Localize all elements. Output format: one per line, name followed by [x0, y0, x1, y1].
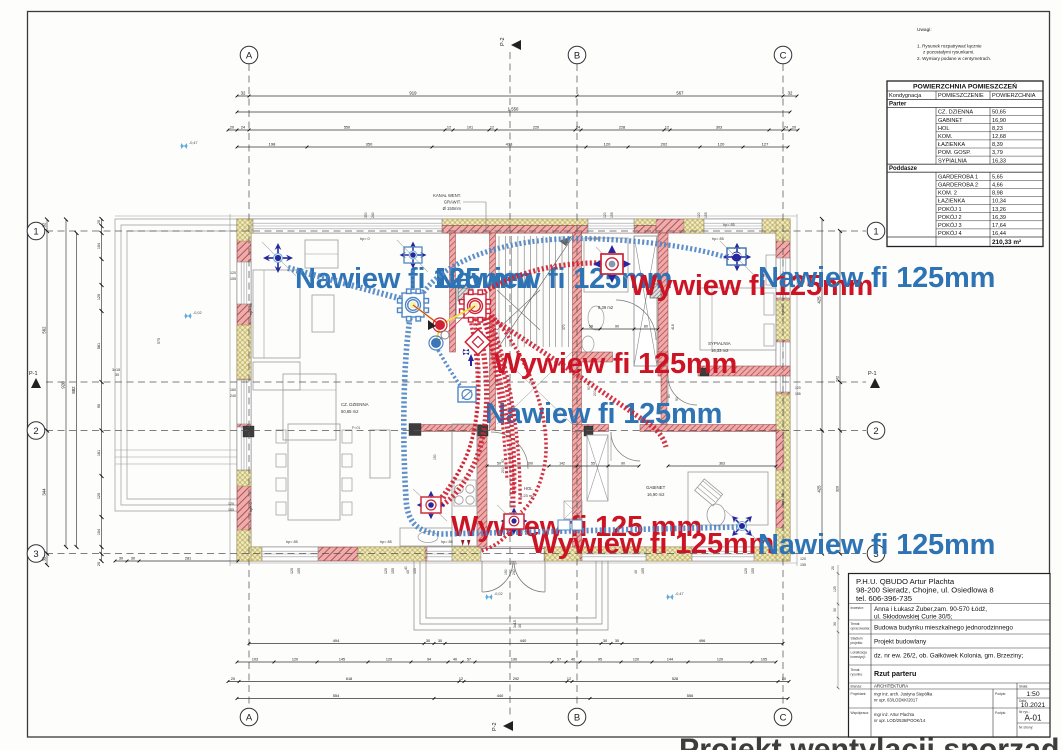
- svg-text:240: 240: [230, 394, 236, 398]
- svg-text:160: 160: [230, 388, 236, 392]
- svg-text:1. Rysunek rozpatrywać łącznie: 1. Rysunek rozpatrywać łącznie: [917, 44, 982, 49]
- svg-text:104: 104: [97, 243, 101, 249]
- svg-text:rysunku:: rysunku:: [851, 673, 864, 677]
- svg-text:nr upr. LOD/2536/POOK/14: nr upr. LOD/2536/POOK/14: [874, 718, 926, 723]
- svg-text:10,34: 10,34: [992, 199, 1006, 205]
- svg-text:projektu:: projektu:: [851, 641, 864, 645]
- svg-text:GRAWIT.: GRAWIT.: [444, 200, 461, 205]
- svg-text:190: 190: [511, 658, 517, 662]
- svg-text:opracowania:: opracowania:: [851, 627, 871, 631]
- svg-text:GABINET: GABINET: [938, 118, 963, 124]
- svg-text:242: 242: [836, 376, 840, 382]
- svg-text:1 550: 1 550: [508, 107, 519, 112]
- svg-text:Lokalizacja: Lokalizacja: [851, 651, 867, 655]
- svg-text:120: 120: [97, 294, 101, 300]
- svg-text:363: 363: [719, 462, 725, 466]
- svg-text:ŁAZIENKA: ŁAZIENKA: [938, 199, 965, 205]
- svg-text:KOM. 2: KOM. 2: [938, 191, 957, 197]
- svg-text:8,23 m2: 8,23 m2: [520, 493, 535, 498]
- svg-text:30: 30: [119, 557, 123, 561]
- svg-text:Nawiew fi 125mm: Nawiew fi 125mm: [485, 398, 722, 430]
- svg-text:120: 120: [795, 386, 801, 390]
- svg-text:120: 120: [717, 658, 723, 662]
- svg-text:8,39: 8,39: [992, 142, 1003, 148]
- svg-text:350: 350: [364, 212, 368, 218]
- svg-text:A-01: A-01: [1025, 714, 1042, 723]
- svg-text:202: 202: [661, 142, 668, 147]
- svg-text:30: 30: [518, 624, 522, 628]
- svg-text:HOL: HOL: [524, 486, 533, 491]
- svg-text:105: 105: [761, 658, 767, 662]
- svg-text:200: 200: [593, 390, 597, 396]
- svg-text:370: 370: [562, 324, 566, 330]
- svg-text:Rzut parteru: Rzut parteru: [874, 669, 916, 678]
- svg-text:104: 104: [97, 529, 101, 535]
- svg-text:155: 155: [610, 212, 614, 218]
- svg-text:155: 155: [230, 277, 236, 281]
- svg-text:3x15: 3x15: [513, 620, 517, 628]
- svg-text:CZ. DZIENNA: CZ. DZIENNA: [938, 110, 973, 116]
- svg-text:198: 198: [269, 142, 276, 147]
- svg-text:440: 440: [497, 693, 504, 698]
- svg-text:2: 2: [873, 426, 878, 437]
- svg-text:142: 142: [559, 462, 565, 466]
- svg-text:155: 155: [228, 508, 234, 512]
- svg-text:95: 95: [598, 658, 602, 662]
- svg-text:344: 344: [42, 488, 47, 496]
- svg-text:Uwagi:: Uwagi:: [917, 27, 932, 33]
- svg-text:919: 919: [409, 91, 417, 96]
- svg-text:P-1: P-1: [868, 371, 877, 377]
- svg-text:Nawiew fi 125mm: Nawiew fi 125mm: [758, 529, 995, 561]
- svg-text:A: A: [246, 712, 253, 723]
- svg-text:hp= 85: hp= 85: [712, 237, 724, 241]
- svg-text:120: 120: [97, 493, 101, 499]
- svg-text:120: 120: [290, 568, 294, 574]
- svg-text:P-1: P-1: [29, 371, 38, 377]
- svg-text:GARDEROBA 2: GARDEROBA 2: [938, 183, 978, 189]
- svg-text:30: 30: [115, 373, 119, 377]
- svg-text:16,90: 16,90: [992, 118, 1006, 124]
- svg-text:433: 433: [506, 142, 513, 147]
- svg-text:32: 32: [42, 556, 47, 561]
- svg-text:1: 1: [873, 226, 878, 237]
- svg-text:Podpis:: Podpis:: [995, 692, 1006, 696]
- svg-text:292: 292: [513, 677, 519, 681]
- svg-text:Temat: Temat: [851, 622, 860, 626]
- svg-text:Skala:: Skala:: [1019, 685, 1028, 689]
- svg-text:Projekt wentylacji sporządził:: Projekt wentylacji sporządził:: [679, 734, 1061, 750]
- svg-text:2. Wymiary podane w centymetra: 2. Wymiary podane w centymetrach.: [917, 56, 991, 61]
- svg-text:Poddasze: Poddasze: [889, 166, 918, 172]
- svg-text:4,66: 4,66: [992, 183, 1003, 189]
- svg-text:32: 32: [42, 222, 47, 227]
- svg-text:Projektant:: Projektant:: [851, 692, 867, 696]
- svg-text:100: 100: [527, 462, 533, 466]
- svg-text:120: 120: [292, 658, 298, 662]
- svg-text:12,68: 12,68: [992, 134, 1006, 140]
- svg-text:24: 24: [576, 126, 580, 130]
- svg-text:Inwestor:: Inwestor:: [851, 606, 864, 610]
- svg-text:C: C: [780, 712, 787, 723]
- svg-text:575: 575: [157, 338, 161, 344]
- svg-text:B: B: [574, 712, 580, 723]
- svg-text:3,79: 3,79: [992, 150, 1003, 156]
- svg-text:567: 567: [676, 91, 684, 96]
- svg-text:A: A: [246, 50, 253, 61]
- svg-text:hp= 85: hp= 85: [249, 303, 253, 315]
- svg-text:Budowa budynku mieszkalnego je: Budowa budynku mieszkalnego jednorodzinn…: [874, 625, 1013, 632]
- svg-text:POKÓJ 2: POKÓJ 2: [938, 214, 962, 221]
- svg-text:16,39: 16,39: [992, 215, 1006, 221]
- svg-text:350: 350: [366, 142, 373, 147]
- svg-text:16,90 m2: 16,90 m2: [647, 492, 665, 497]
- svg-text:144: 144: [667, 658, 673, 662]
- svg-text:228: 228: [619, 126, 625, 130]
- svg-text:Temat: Temat: [851, 668, 860, 672]
- svg-text:ul. Skłodowskiej Curie 30/5;: ul. Skłodowskiej Curie 30/5;: [874, 614, 953, 621]
- svg-text:155: 155: [391, 568, 395, 574]
- svg-text:20: 20: [782, 677, 786, 681]
- svg-text:155: 155: [704, 212, 708, 218]
- svg-text:55: 55: [591, 462, 595, 466]
- svg-text:281: 281: [185, 557, 191, 561]
- svg-text:POKÓJ 4: POKÓJ 4: [938, 230, 962, 237]
- svg-text:618: 618: [346, 677, 352, 681]
- svg-text:10.2021: 10.2021: [1021, 702, 1046, 709]
- svg-text:494: 494: [333, 638, 340, 643]
- svg-text:Nr strony:: Nr strony:: [1019, 726, 1033, 730]
- svg-text:Ø 150mm: Ø 150mm: [443, 206, 462, 211]
- svg-text:12: 12: [490, 126, 494, 130]
- svg-text:hp= 85: hp= 85: [723, 223, 735, 227]
- svg-text:120: 120: [604, 142, 611, 147]
- svg-text:120: 120: [744, 568, 748, 574]
- svg-text:CZ. DZIENNA: CZ. DZIENNA: [341, 402, 369, 407]
- svg-text:554: 554: [333, 693, 340, 698]
- svg-text:12: 12: [665, 126, 669, 130]
- svg-text:POWIERZCHNIA: POWIERZCHNIA: [992, 93, 1036, 99]
- svg-text:inwestycji:: inwestycji:: [851, 655, 866, 659]
- svg-text:hp= 0: hp= 0: [360, 237, 370, 241]
- svg-text:200: 200: [501, 467, 505, 473]
- svg-text:GARDEROBA 1: GARDEROBA 1: [938, 174, 978, 180]
- svg-text:155: 155: [751, 568, 755, 574]
- svg-text:20: 20: [97, 220, 101, 224]
- svg-text:5,65: 5,65: [992, 174, 1003, 180]
- svg-text:882: 882: [71, 386, 76, 394]
- svg-text:418: 418: [671, 324, 675, 330]
- svg-text:190: 190: [504, 569, 508, 575]
- svg-text:8,23: 8,23: [992, 126, 1003, 132]
- svg-text:16,33: 16,33: [992, 158, 1006, 164]
- svg-text:20: 20: [97, 562, 101, 566]
- svg-text:120: 120: [384, 568, 388, 574]
- svg-text:17,64: 17,64: [992, 223, 1006, 229]
- svg-text:240: 240: [371, 212, 375, 218]
- svg-text:103: 103: [252, 658, 258, 662]
- svg-text:120: 120: [386, 658, 392, 662]
- svg-text:320: 320: [836, 486, 840, 492]
- svg-text:40: 40: [453, 658, 457, 662]
- svg-text:920: 920: [61, 381, 66, 389]
- svg-text:ARCHITEKTURA: ARCHITEKTURA: [874, 684, 908, 689]
- svg-text:40: 40: [571, 658, 575, 662]
- svg-text:90: 90: [621, 462, 625, 466]
- svg-text:Kondygnacja: Kondygnacja: [889, 93, 922, 99]
- svg-text:POKÓJ 1: POKÓJ 1: [938, 206, 962, 213]
- svg-text:-0,47: -0,47: [189, 141, 198, 145]
- svg-text:155: 155: [413, 568, 417, 574]
- svg-text:57: 57: [557, 658, 561, 662]
- svg-text:90: 90: [615, 325, 619, 329]
- svg-text:50,65 m2: 50,65 m2: [341, 409, 359, 414]
- svg-text:496: 496: [699, 638, 706, 643]
- svg-text:30: 30: [131, 557, 135, 561]
- svg-text:POM. GOSP.: POM. GOSP.: [938, 150, 971, 156]
- svg-text:B: B: [574, 50, 580, 61]
- svg-text:Nawiew fi 125mm: Nawiew fi 125mm: [758, 262, 995, 294]
- svg-text:80: 80: [644, 325, 648, 329]
- svg-text:Podpis:: Podpis:: [995, 711, 1006, 715]
- svg-text:50,65: 50,65: [992, 110, 1006, 116]
- svg-text:C: C: [780, 50, 787, 61]
- svg-text:210,33 m²: 210,33 m²: [992, 239, 1021, 246]
- svg-text:Współpraca:: Współpraca:: [851, 711, 869, 715]
- svg-text:SYPIALNIA: SYPIALNIA: [938, 158, 967, 164]
- svg-text:SYPIALNIA: SYPIALNIA: [708, 341, 731, 346]
- svg-text:12: 12: [459, 677, 463, 681]
- svg-text:GABINET: GABINET: [646, 485, 666, 490]
- svg-text:20: 20: [792, 126, 796, 130]
- svg-text:425: 425: [817, 485, 822, 493]
- svg-text:20: 20: [230, 126, 234, 130]
- svg-text:32: 32: [241, 91, 246, 96]
- svg-text:P-2: P-2: [500, 37, 506, 46]
- svg-text:1:50: 1:50: [1026, 691, 1039, 698]
- svg-text:550: 550: [344, 126, 350, 130]
- svg-text:90: 90: [587, 386, 591, 390]
- svg-text:-0,47: -0,47: [675, 592, 684, 596]
- svg-text:101: 101: [467, 126, 473, 130]
- svg-text:20: 20: [831, 566, 835, 570]
- svg-text:30: 30: [833, 608, 837, 612]
- svg-text:127: 127: [762, 142, 769, 147]
- svg-text:12: 12: [567, 677, 571, 681]
- svg-text:2: 2: [33, 426, 38, 437]
- svg-text:30: 30: [833, 622, 837, 626]
- svg-text:HOL: HOL: [938, 126, 950, 132]
- svg-text:240: 240: [512, 569, 516, 575]
- svg-text:Stadium: Stadium: [851, 637, 863, 641]
- svg-text:24: 24: [784, 126, 788, 130]
- svg-text:KOM.: KOM.: [938, 134, 953, 140]
- svg-text:440: 440: [520, 638, 527, 643]
- svg-text:120: 120: [718, 142, 725, 147]
- svg-text:32: 32: [788, 91, 793, 96]
- svg-text:125: 125: [833, 586, 837, 592]
- svg-text:562: 562: [42, 326, 47, 334]
- svg-text:24: 24: [241, 126, 245, 130]
- svg-text:581: 581: [97, 343, 101, 349]
- svg-text:150: 150: [433, 454, 437, 460]
- svg-text:16,44: 16,44: [992, 231, 1006, 237]
- svg-text:120: 120: [230, 271, 236, 275]
- svg-text:nr upr. 03/LODKK/2017: nr upr. 03/LODKK/2017: [874, 698, 918, 703]
- svg-text:3x15: 3x15: [112, 368, 120, 372]
- svg-text:155: 155: [795, 392, 801, 396]
- svg-text:155: 155: [800, 563, 806, 567]
- svg-text:POWIERZCHNIA POMIESZCZEŃ: POWIERZCHNIA POMIESZCZEŃ: [913, 81, 1017, 90]
- svg-text:Projekt budowlany: Projekt budowlany: [874, 639, 927, 646]
- svg-text:Wywiew fi 125mm: Wywiew fi 125mm: [531, 528, 774, 560]
- svg-text:8,39 m2: 8,39 m2: [598, 305, 614, 310]
- svg-text:155: 155: [641, 568, 645, 574]
- svg-text:161: 161: [97, 450, 101, 456]
- svg-text:KANAŁ WENT.: KANAŁ WENT.: [433, 193, 461, 198]
- svg-text:tel. 606-396-735: tel. 606-396-735: [856, 594, 912, 603]
- svg-text:Anna i Łukasz Żuber,zam. 90-57: Anna i Łukasz Żuber,zam. 90-570 Łódź,: [874, 604, 987, 613]
- svg-text:528: 528: [672, 677, 678, 681]
- svg-text:40: 40: [404, 566, 408, 570]
- svg-text:hp= 85: hp= 85: [380, 540, 392, 544]
- svg-text:mgr inż. arch. Justyna Siepółk: mgr inż. arch. Justyna Siepółka: [874, 692, 933, 697]
- svg-text:8,98: 8,98: [992, 191, 1003, 197]
- svg-text:20: 20: [231, 677, 235, 681]
- svg-text:hp= 85: hp= 85: [286, 540, 298, 544]
- svg-text:P=01: P=01: [352, 426, 361, 430]
- svg-text:P-2: P-2: [492, 722, 498, 731]
- svg-text:ŁAZIENKA: ŁAZIENKA: [938, 142, 965, 148]
- svg-text:-0,02: -0,02: [494, 592, 503, 596]
- svg-text:dz. nr ew. 26/2, ob. Gałkówek: dz. nr ew. 26/2, ob. Gałkówek Kolonia, g…: [874, 653, 1023, 660]
- svg-text:hp= 0: hp= 0: [249, 502, 253, 512]
- svg-text:556: 556: [687, 693, 694, 698]
- svg-text:58: 58: [589, 325, 593, 329]
- svg-text:120: 120: [228, 502, 234, 506]
- svg-text:3: 3: [33, 549, 38, 560]
- svg-text:Branża:: Branża:: [851, 685, 862, 689]
- svg-text:POKÓJ 3: POKÓJ 3: [938, 222, 962, 229]
- svg-text:145: 145: [339, 658, 345, 662]
- svg-text:40: 40: [634, 570, 638, 574]
- svg-text:120: 120: [603, 212, 607, 218]
- svg-text:94: 94: [427, 658, 431, 662]
- svg-text:13,26: 13,26: [992, 207, 1006, 213]
- svg-text:-0,02: -0,02: [193, 311, 202, 315]
- svg-text:Parter: Parter: [889, 102, 907, 108]
- svg-text:155: 155: [297, 568, 301, 574]
- svg-text:57: 57: [467, 658, 471, 662]
- svg-text:12: 12: [447, 126, 451, 130]
- svg-text:mgr inż. Artur Plachta: mgr inż. Artur Plachta: [874, 712, 915, 717]
- svg-text:POMIESZCZENIE: POMIESZCZENIE: [938, 93, 984, 99]
- svg-text:303: 303: [716, 126, 722, 130]
- svg-text:120: 120: [697, 212, 701, 218]
- svg-text:1: 1: [33, 226, 38, 237]
- svg-text:120: 120: [633, 658, 639, 662]
- svg-text:z pozostałymi rysunkami.: z pozostałymi rysunkami.: [923, 50, 974, 55]
- svg-text:90: 90: [97, 404, 101, 408]
- svg-text:220: 220: [533, 126, 539, 130]
